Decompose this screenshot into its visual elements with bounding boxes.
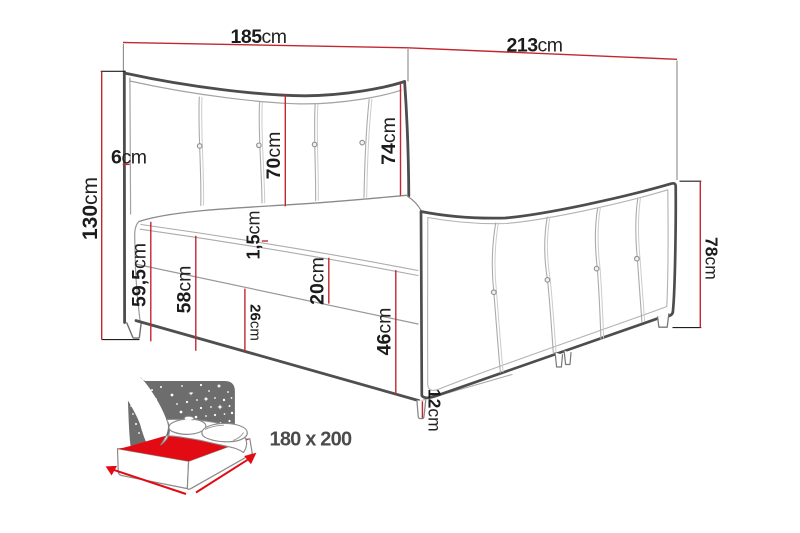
svg-text:78cm: 78cm [702, 237, 722, 280]
svg-text:26cm: 26cm [247, 304, 264, 341]
svg-text:59,5cm: 59,5cm [129, 243, 151, 307]
svg-text:12cm: 12cm [425, 389, 445, 432]
svg-text:180 x 200: 180 x 200 [270, 428, 352, 450]
svg-text:70cm: 70cm [263, 132, 285, 180]
svg-text:130cm: 130cm [79, 177, 102, 240]
svg-text:46cm: 46cm [373, 308, 395, 356]
svg-text:20cm: 20cm [306, 257, 328, 305]
svg-text:74cm: 74cm [378, 117, 400, 165]
svg-text:185cm: 185cm [231, 26, 287, 48]
svg-text:58cm: 58cm [173, 266, 195, 314]
svg-text:213cm: 213cm [507, 35, 563, 57]
svg-text:6cm: 6cm [111, 146, 147, 168]
svg-text:1,5cm: 1,5cm [243, 210, 263, 259]
